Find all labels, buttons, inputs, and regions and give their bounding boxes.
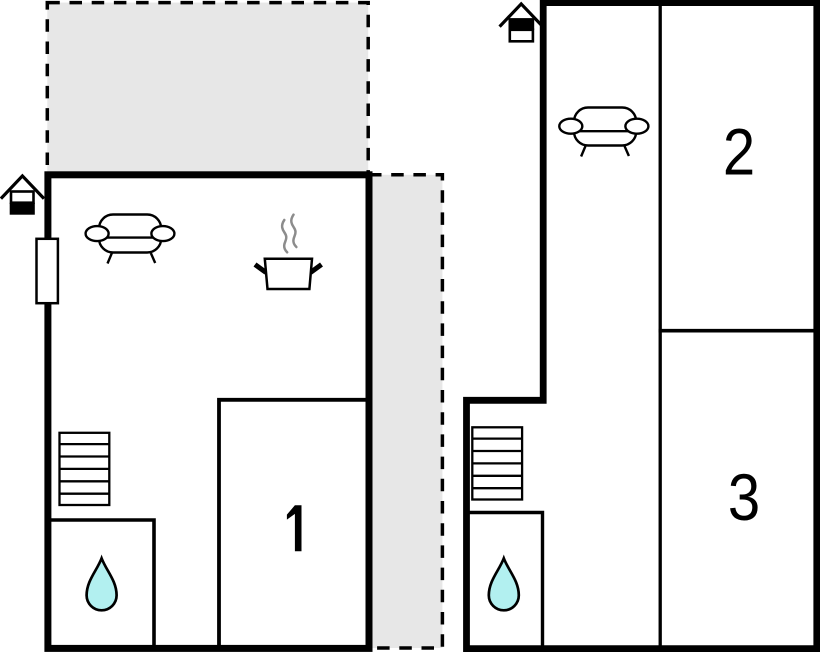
svg-text:3: 3 [728, 462, 760, 535]
svg-text:2: 2 [723, 116, 755, 189]
